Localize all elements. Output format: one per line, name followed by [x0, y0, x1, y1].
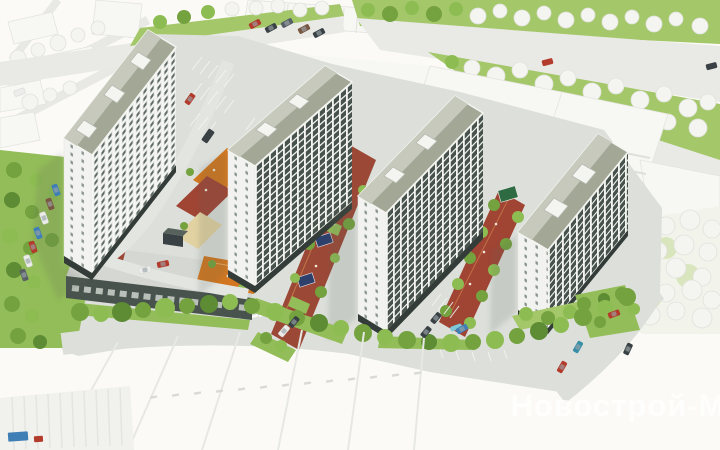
tree — [27, 275, 41, 289]
tree — [4, 296, 20, 312]
play-equipment — [483, 251, 486, 254]
tree — [426, 6, 442, 22]
tree — [31, 43, 45, 57]
tree — [488, 199, 500, 211]
tree — [249, 1, 263, 15]
tree — [50, 35, 66, 51]
tree — [631, 91, 649, 109]
tree — [537, 6, 551, 20]
tree — [71, 303, 89, 321]
tree — [512, 211, 524, 223]
tree — [405, 1, 419, 15]
aerial-render: Новострой-М — [0, 0, 720, 450]
tree — [155, 298, 175, 318]
tree — [679, 99, 697, 117]
play-equipment — [315, 265, 318, 268]
tree — [574, 308, 592, 326]
tree — [514, 10, 530, 26]
tree — [476, 290, 488, 302]
tree — [222, 294, 238, 310]
tree — [361, 3, 375, 17]
tree — [293, 3, 307, 17]
building-shadow — [328, 198, 356, 340]
tree — [493, 4, 507, 18]
tree — [135, 302, 151, 318]
tree — [200, 295, 218, 313]
tree — [177, 10, 191, 24]
tree — [310, 314, 328, 332]
tree — [377, 329, 393, 345]
tree — [594, 316, 606, 328]
tree — [43, 88, 57, 102]
tree — [509, 328, 525, 344]
tree — [689, 119, 707, 137]
gable-wall — [358, 196, 386, 331]
tree — [275, 340, 287, 352]
building-shadow — [198, 152, 226, 296]
tree — [692, 308, 712, 328]
container-red — [34, 436, 43, 443]
tree — [315, 286, 327, 298]
tree — [91, 21, 105, 35]
tree — [4, 192, 20, 208]
tree — [260, 332, 272, 344]
tree — [558, 12, 574, 28]
tree — [608, 78, 624, 94]
tree — [486, 331, 504, 349]
tree — [646, 16, 662, 32]
gable-wall — [64, 138, 92, 273]
tree — [625, 10, 639, 24]
tree — [186, 168, 194, 176]
tree — [6, 162, 22, 178]
tree — [442, 334, 460, 352]
tree — [33, 335, 47, 349]
tree — [667, 302, 685, 320]
tree — [700, 94, 716, 110]
tree — [6, 262, 22, 278]
tree — [512, 62, 528, 78]
play-equipment — [469, 283, 472, 286]
tree — [669, 12, 683, 26]
tree — [666, 258, 686, 278]
tree — [179, 298, 195, 314]
tree — [25, 309, 39, 323]
tree — [699, 243, 717, 261]
tree — [530, 322, 548, 340]
tree — [180, 222, 188, 230]
tree — [682, 280, 702, 300]
tree — [153, 15, 167, 29]
tower-b-gable — [228, 150, 255, 293]
container-blue — [8, 431, 29, 441]
tree — [445, 55, 459, 69]
tree — [470, 8, 486, 24]
tree — [602, 14, 618, 30]
tree — [10, 328, 26, 344]
tree — [680, 210, 700, 230]
tree — [581, 8, 595, 22]
tree — [201, 5, 215, 19]
tree — [271, 0, 285, 13]
tree — [553, 317, 569, 333]
tree — [398, 331, 416, 349]
tree — [618, 288, 636, 306]
tree — [112, 302, 132, 322]
tree — [703, 220, 720, 238]
tree — [315, 1, 329, 15]
tree — [244, 298, 260, 314]
tree — [71, 28, 85, 42]
tree — [225, 2, 239, 16]
tree — [449, 2, 463, 16]
play-equipment — [495, 223, 498, 226]
gable-wall — [228, 150, 255, 286]
tree — [382, 6, 398, 22]
tower-c-gable — [358, 196, 386, 338]
tree — [674, 235, 694, 255]
tree — [93, 306, 109, 322]
render-canvas: Новострой-М — [0, 0, 720, 450]
tree — [692, 18, 708, 34]
watermark-text: Новострой-М — [511, 388, 720, 423]
tree — [519, 307, 533, 321]
tree — [2, 228, 18, 244]
tree — [63, 81, 77, 95]
tree — [541, 311, 555, 325]
tree — [703, 291, 720, 309]
tree — [656, 86, 672, 102]
tower-a-gable — [64, 138, 92, 280]
tree — [333, 320, 349, 336]
tree — [465, 334, 481, 350]
tree — [290, 273, 300, 283]
tree — [266, 303, 284, 321]
tree — [560, 70, 576, 86]
tree — [452, 278, 464, 290]
tree — [22, 94, 38, 110]
